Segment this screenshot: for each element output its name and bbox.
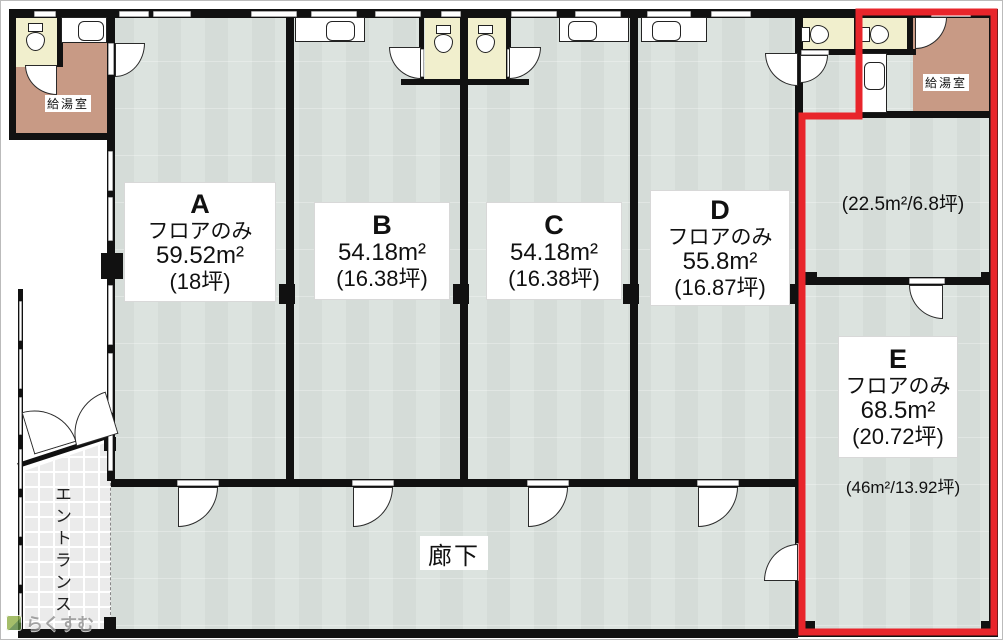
toilet-bowl — [26, 32, 45, 51]
pillar — [981, 272, 994, 285]
window — [119, 11, 149, 17]
window — [575, 11, 621, 17]
room-d-type: フロアのみ — [668, 226, 773, 250]
window — [527, 480, 569, 486]
room-a-area-m2: 59.52m² — [156, 243, 244, 270]
room-a-type: フロアのみ — [148, 220, 253, 244]
pillar — [453, 284, 469, 304]
window — [108, 197, 113, 241]
window — [108, 285, 113, 345]
window — [441, 11, 461, 17]
room-c-label: C 54.18m² (16.38坪) — [487, 203, 621, 299]
window — [931, 11, 971, 17]
toilet-bowl — [434, 34, 453, 53]
wall — [798, 629, 998, 637]
room-e-area-tsubo: (20.72坪) — [852, 425, 944, 450]
room-d-letter: D — [710, 195, 730, 225]
sink-counter — [295, 17, 365, 42]
window — [251, 11, 297, 17]
pillar — [804, 272, 817, 285]
room-b-area-tsubo: (16.38坪) — [336, 267, 428, 292]
toilet-tank — [436, 25, 451, 34]
window — [19, 449, 22, 489]
wall — [461, 15, 468, 107]
room-e-letter: E — [889, 344, 907, 374]
sink-icon — [864, 62, 885, 90]
kitchenette-left-label: 給湯室 — [45, 95, 91, 112]
wall — [286, 15, 294, 481]
wall — [401, 79, 529, 85]
window — [511, 11, 557, 17]
sink-counter — [61, 17, 107, 43]
wall — [804, 277, 994, 285]
window — [311, 11, 357, 17]
toilet-icon — [801, 23, 831, 45]
sink-counter — [859, 53, 887, 113]
toilet-icon — [25, 23, 47, 53]
room-a-area-tsubo: (18坪) — [169, 270, 230, 295]
toilet-icon — [475, 25, 497, 55]
window — [108, 43, 114, 75]
room-c-area-m2: 54.18m² — [510, 240, 598, 267]
toilet-bowl — [476, 34, 495, 53]
sink-counter — [641, 17, 707, 42]
wall — [854, 15, 860, 53]
window — [153, 11, 191, 17]
window — [697, 480, 739, 486]
window — [19, 545, 22, 585]
wall — [18, 629, 798, 638]
toilet-tank — [861, 27, 870, 42]
room-e-label: E フロアのみ 68.5m² (20.72坪) — [839, 337, 957, 457]
window — [19, 497, 22, 537]
watermark-text: らくすむ — [26, 610, 94, 635]
pillar — [623, 284, 639, 304]
window — [647, 11, 691, 17]
wall — [795, 15, 803, 635]
room-d-area-m2: 55.8m² — [683, 249, 758, 276]
entrance-label: エントランス — [49, 485, 74, 627]
toilet-tank — [478, 25, 493, 34]
pillar — [787, 284, 801, 304]
toilet-tank — [28, 23, 43, 32]
toilet-icon — [433, 25, 455, 55]
pillar — [101, 253, 123, 279]
window — [375, 11, 421, 17]
wall — [630, 15, 638, 481]
room-c-area-tsubo: (16.38坪) — [508, 267, 600, 292]
room-d-area-tsubo: (16.87坪) — [674, 276, 766, 301]
window — [19, 301, 22, 341]
room-b-letter: B — [372, 210, 392, 240]
window — [711, 11, 751, 17]
toilet-bowl — [810, 25, 829, 44]
window — [177, 480, 219, 486]
room-e-sub-area-text: (46m²/13.92坪) — [823, 473, 983, 498]
window — [108, 151, 113, 191]
wall — [9, 9, 16, 139]
sink-counter — [559, 17, 629, 42]
toilet-bowl — [870, 25, 889, 44]
sink-icon — [568, 21, 597, 41]
pillar — [279, 284, 295, 304]
corridor-label: 廊下 — [420, 536, 488, 570]
window — [909, 278, 945, 284]
window — [34, 11, 56, 17]
watermark-house-icon — [6, 615, 22, 631]
watermark: らくすむ — [6, 610, 94, 635]
room-e-area-m2: 68.5m² — [861, 398, 936, 425]
toilet-icon — [861, 23, 891, 45]
wall — [9, 133, 113, 140]
window — [19, 397, 22, 435]
sink-icon — [652, 21, 681, 41]
room-a-label: A フロアのみ 59.52m² (18坪) — [125, 183, 275, 301]
room-e-type: フロアのみ — [846, 375, 951, 399]
room-b-area-m2: 54.18m² — [338, 240, 426, 267]
toilet-tank — [801, 27, 810, 42]
wall — [104, 617, 116, 631]
pillar — [981, 621, 992, 632]
pillar — [804, 621, 815, 632]
wall — [907, 15, 913, 55]
room-d-label: D フロアのみ 55.8m² (16.87坪) — [651, 191, 789, 305]
room-b-label: B 54.18m² (16.38坪) — [315, 203, 449, 299]
window — [19, 349, 22, 389]
upper-right-area-text: (22.5m²/6.8坪) — [823, 189, 983, 216]
window — [352, 480, 394, 486]
sink-icon — [326, 21, 355, 41]
wall — [989, 9, 998, 637]
kitchenette-right-label: 給湯室 — [923, 74, 969, 91]
room-c-letter: C — [544, 210, 564, 240]
room-a-letter: A — [190, 189, 210, 219]
floor-plan: A フロアのみ 59.52m² (18坪) B 54.18m² (16.38坪)… — [0, 0, 1003, 640]
sink-icon — [78, 21, 104, 41]
